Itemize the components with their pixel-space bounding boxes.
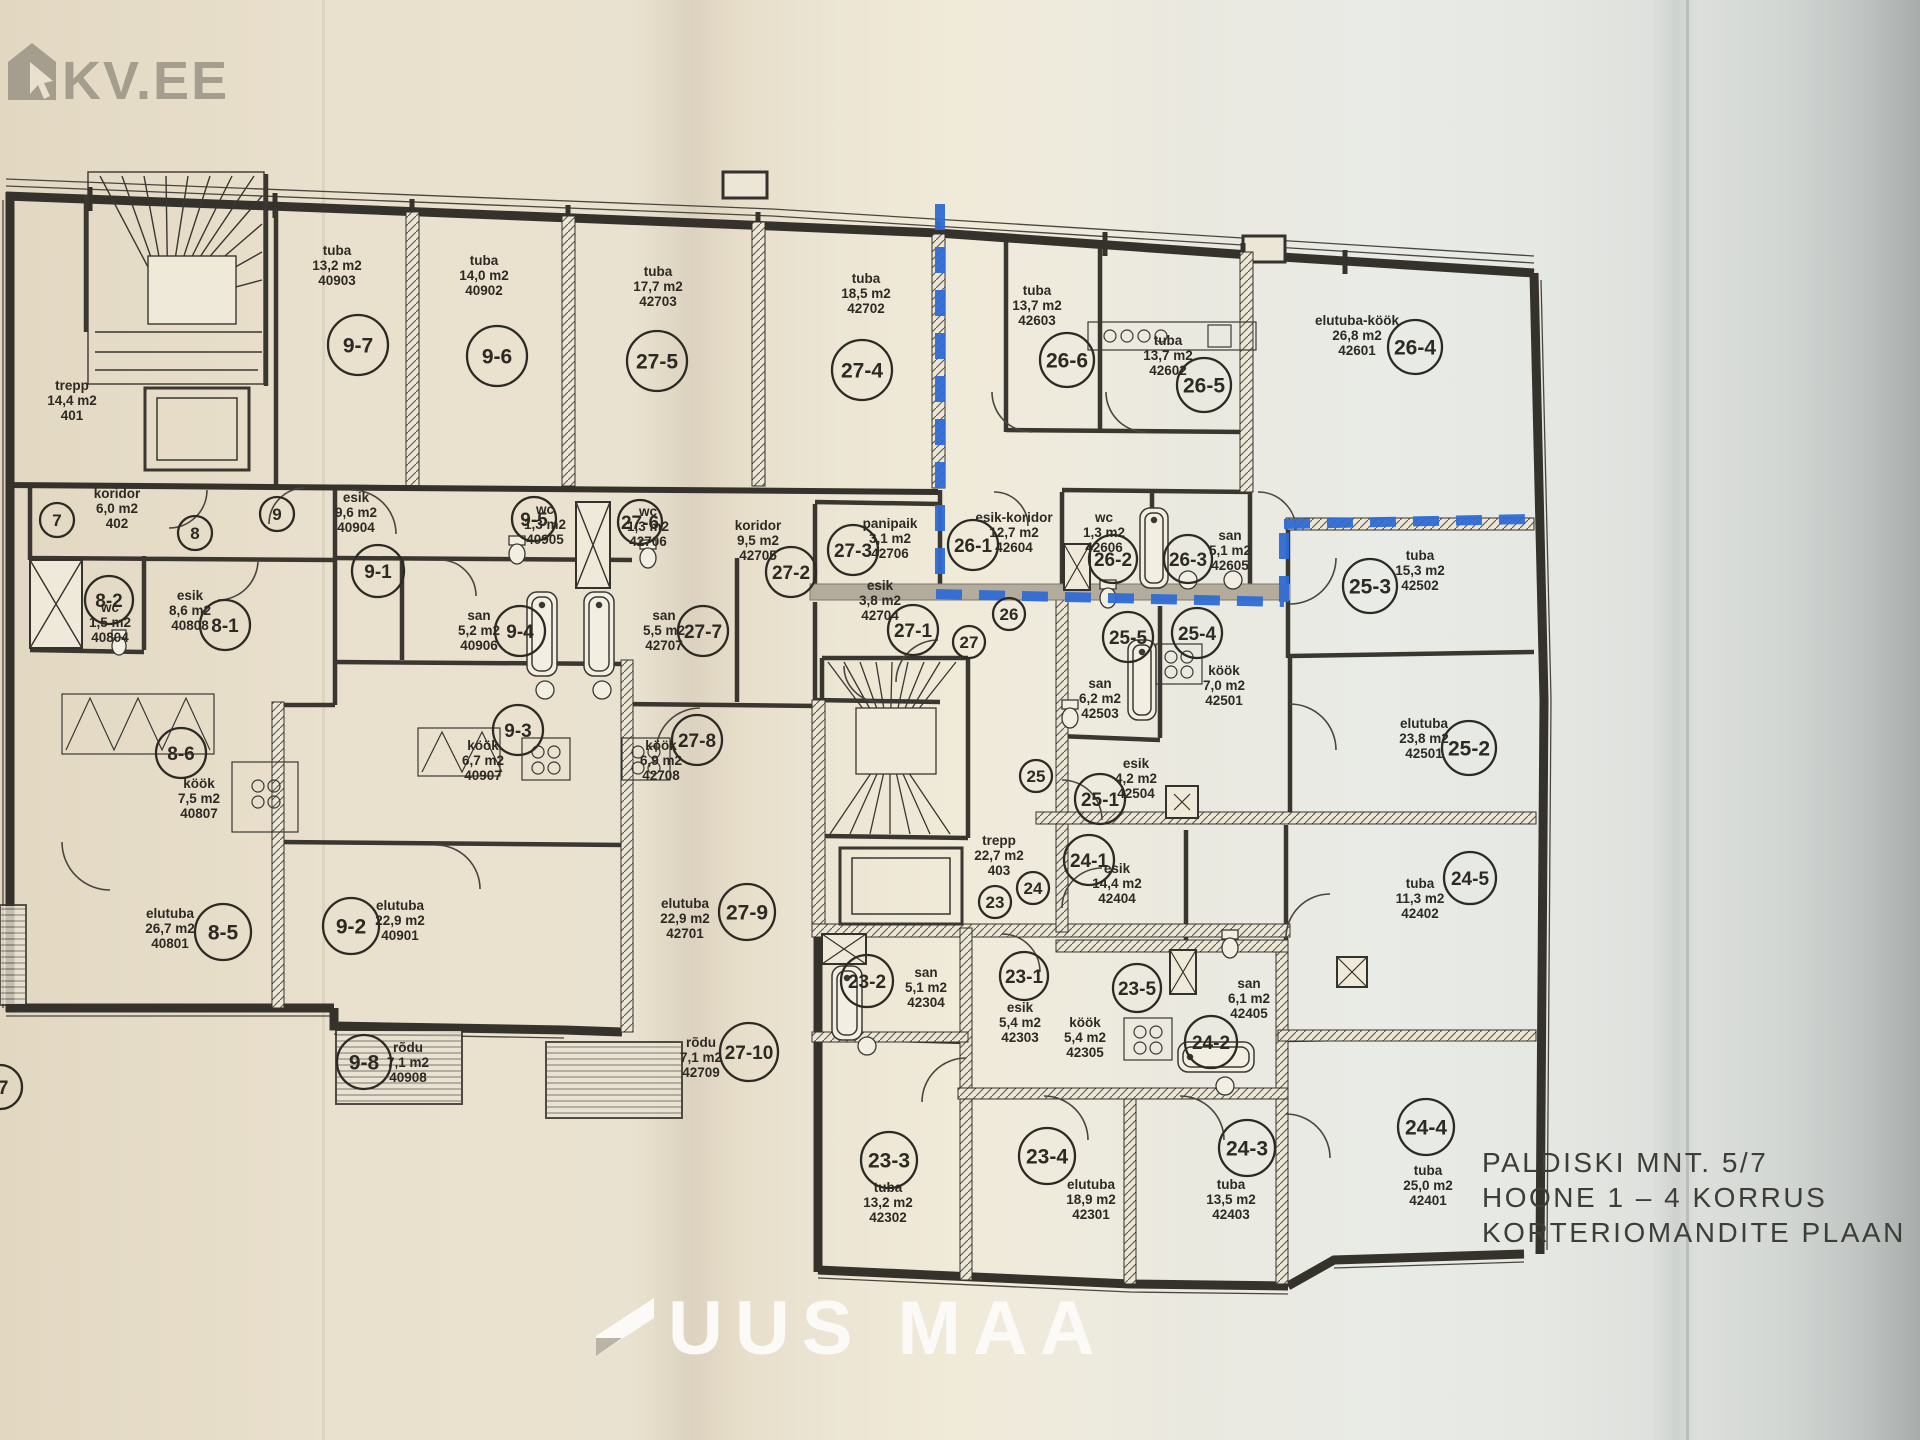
room-label-42501: elutuba23,8 m242501 [1399, 716, 1449, 761]
svg-text:23-3: 23-3 [868, 1150, 910, 1173]
svg-text:26-6: 26-6 [1046, 350, 1088, 373]
svg-text:24-4: 24-4 [1405, 1117, 1447, 1140]
room-label-42301: elutuba18,9 m242301 [1066, 1177, 1116, 1222]
svg-text:27-3: 27-3 [834, 541, 872, 562]
svg-text:27-2: 27-2 [772, 563, 810, 584]
svg-text:9-1: 9-1 [364, 562, 392, 583]
svg-text:25-1: 25-1 [1081, 790, 1119, 811]
svg-text:9-7: 9-7 [343, 335, 373, 358]
svg-text:8-1: 8-1 [211, 616, 239, 637]
svg-text:8-2: 8-2 [95, 591, 122, 612]
title-address: PALDISKI MNT. 5/7 [1482, 1147, 1768, 1178]
svg-text:27-7: 27-7 [684, 622, 722, 643]
svg-text:26-5: 26-5 [1183, 375, 1225, 398]
svg-text:7: 7 [52, 511, 61, 530]
svg-text:27-5: 27-5 [636, 351, 678, 374]
kvee-logo-text: KV.EE [62, 51, 229, 111]
room-label-42709: rõdu7,1 m242709 [680, 1035, 722, 1080]
svg-text:9-2: 9-2 [336, 916, 366, 939]
room-label-42305: köök5,4 m242305 [1064, 1015, 1106, 1060]
room-label-42708: köök6,9 m242708 [640, 738, 682, 783]
svg-text:9-5: 9-5 [520, 510, 548, 531]
uusmaa-logo-text: UUS MAA [668, 1286, 1107, 1371]
svg-text:26-1: 26-1 [954, 536, 992, 557]
svg-text:8-6: 8-6 [167, 744, 194, 765]
svg-text:24-1: 24-1 [1070, 851, 1108, 872]
room-label-42501: köök7,0 m242501 [1203, 663, 1245, 708]
svg-text:27: 27 [960, 633, 979, 652]
svg-text:23: 23 [986, 893, 1005, 912]
room-label-40807: köök7,5 m240807 [178, 776, 220, 821]
svg-text:26-4: 26-4 [1394, 337, 1436, 360]
svg-text:27-4: 27-4 [841, 360, 883, 383]
svg-text:24: 24 [1024, 879, 1043, 898]
svg-text:23-4: 23-4 [1026, 1146, 1068, 1169]
svg-text:23-5: 23-5 [1118, 979, 1156, 1000]
svg-text:25-2: 25-2 [1448, 738, 1490, 761]
svg-text:27-1: 27-1 [894, 621, 932, 642]
room-label-40801: elutuba26,7 m240801 [145, 906, 195, 951]
svg-text:27-10: 27-10 [725, 1043, 774, 1064]
svg-text:25-3: 25-3 [1349, 576, 1391, 599]
svg-text:25-5: 25-5 [1109, 628, 1147, 649]
uusmaa-logo: UUS MAA [596, 1286, 1107, 1371]
svg-text:25: 25 [1027, 767, 1046, 786]
svg-text:24-5: 24-5 [1451, 869, 1489, 890]
svg-text:26: 26 [1000, 605, 1019, 624]
svg-text:26-3: 26-3 [1169, 550, 1207, 571]
svg-text:27-8: 27-8 [678, 731, 716, 752]
svg-text:27-6: 27-6 [621, 513, 659, 534]
svg-text:27-9: 27-9 [726, 902, 768, 925]
room-label-42701: elutuba22,9 m242701 [660, 896, 710, 941]
floor-plan-photo: trepp14,4 m2401tuba13,2 m240903tuba14,0 … [0, 0, 1920, 1440]
room-label-42705: koridor9,5 m242705 [735, 518, 782, 563]
svg-text:24-2: 24-2 [1192, 1033, 1230, 1054]
svg-text:9-6: 9-6 [482, 346, 512, 369]
svg-text:26-2: 26-2 [1094, 550, 1132, 571]
svg-text:25-4: 25-4 [1178, 624, 1216, 645]
svg-text:-7: -7 [0, 1078, 8, 1099]
room-label-40901: elutuba22,9 m240901 [375, 898, 425, 943]
svg-text:9-3: 9-3 [504, 721, 531, 742]
svg-text:8-5: 8-5 [208, 922, 239, 945]
room-label-40908: rõdu7,1 m240908 [387, 1040, 429, 1085]
svg-text:9: 9 [272, 505, 281, 524]
floor-plan-canvas: trepp14,4 m2401tuba13,2 m240903tuba14,0 … [0, 0, 1920, 1440]
svg-text:23-1: 23-1 [1005, 967, 1043, 988]
paper-crease-left [322, 0, 325, 1440]
svg-text:24-3: 24-3 [1226, 1138, 1268, 1161]
svg-text:9-8: 9-8 [349, 1052, 380, 1075]
svg-text:23-2: 23-2 [848, 972, 886, 993]
title-plan-type: KORTERIOMANDITE PLAAN [1482, 1217, 1906, 1248]
svg-text:9-4: 9-4 [506, 622, 534, 643]
svg-text:8: 8 [190, 524, 199, 543]
title-floors: HOONE 1 – 4 KORRUS [1482, 1182, 1827, 1213]
